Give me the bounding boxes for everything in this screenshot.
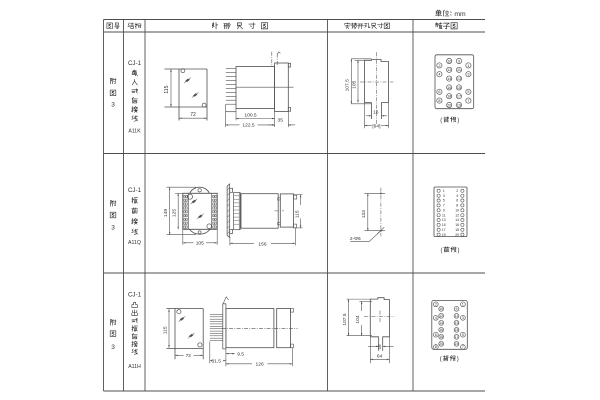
svg-text:13: 13	[455, 321, 459, 325]
svg-text:6: 6	[438, 90, 440, 94]
svg-text:72: 72	[186, 353, 192, 359]
svg-text:2: 2	[435, 303, 437, 307]
svg-text:64: 64	[377, 353, 383, 359]
svg-text:12: 12	[439, 314, 443, 318]
svg-text:[64]: [64]	[372, 124, 381, 130]
svg-text:8: 8	[435, 345, 437, 349]
svg-text:3: 3	[462, 316, 464, 320]
svg-text:10: 10	[439, 307, 443, 311]
svg-text:126: 126	[256, 362, 264, 368]
svg-text:16: 16	[447, 86, 451, 90]
svg-text:15: 15	[457, 86, 461, 90]
svg-text:107.5: 107.5	[344, 79, 350, 92]
svg-text:3: 3	[467, 73, 469, 77]
svg-text:8: 8	[456, 204, 458, 208]
svg-text:35: 35	[277, 117, 283, 123]
svg-text:10: 10	[455, 209, 459, 213]
svg-text:(: (	[441, 248, 443, 254]
svg-text:6: 6	[435, 333, 437, 337]
svg-text:7: 7	[443, 204, 445, 208]
svg-text:1: 1	[462, 303, 464, 307]
svg-text:(: (	[440, 357, 442, 363]
svg-text:4: 4	[435, 316, 437, 320]
svg-text:18: 18	[447, 95, 451, 99]
svg-text:115: 115	[294, 210, 300, 218]
svg-text:20: 20	[455, 233, 459, 237]
svg-text:31.5: 31.5	[211, 359, 221, 365]
svg-text:156: 156	[258, 241, 266, 247]
svg-text:7: 7	[462, 345, 464, 349]
svg-text:2-Φ6: 2-Φ6	[350, 236, 361, 242]
svg-text:1: 1	[443, 189, 445, 193]
svg-text:72: 72	[190, 112, 196, 118]
svg-text:): )	[457, 118, 459, 124]
svg-text:107.5: 107.5	[342, 313, 348, 326]
svg-text:19: 19	[442, 233, 446, 237]
svg-text:CJ-1: CJ-1	[128, 292, 142, 299]
svg-text:A11K: A11K	[128, 128, 141, 134]
svg-text:115: 115	[162, 326, 168, 334]
svg-text:100.5: 100.5	[244, 112, 257, 118]
svg-text:CJ-1: CJ-1	[128, 60, 142, 67]
svg-text:133: 133	[361, 210, 367, 218]
svg-text:14: 14	[455, 218, 459, 222]
svg-text:7: 7	[467, 99, 469, 103]
svg-text:16: 16	[373, 109, 379, 115]
svg-text:13: 13	[442, 218, 446, 222]
svg-text:105: 105	[352, 80, 358, 88]
svg-text:104: 104	[355, 315, 361, 323]
svg-text:4: 4	[456, 194, 458, 198]
svg-text:A11Q: A11Q	[128, 240, 141, 246]
svg-text:4: 4	[438, 73, 440, 77]
svg-text:20: 20	[439, 342, 443, 346]
svg-text:mm: mm	[454, 11, 466, 18]
svg-text:115: 115	[164, 85, 170, 93]
svg-text:13: 13	[457, 77, 461, 81]
svg-text:16: 16	[439, 328, 443, 332]
svg-text:19: 19	[457, 103, 461, 107]
svg-text:18: 18	[455, 228, 459, 232]
svg-text:12: 12	[447, 68, 451, 72]
svg-text:5: 5	[443, 199, 445, 203]
svg-text:5: 5	[462, 333, 464, 337]
svg-text:19: 19	[455, 342, 459, 346]
svg-text:15: 15	[455, 328, 459, 332]
svg-text:10: 10	[447, 59, 451, 63]
svg-text:): )	[457, 357, 459, 363]
svg-text:8: 8	[438, 99, 440, 103]
svg-text:9: 9	[443, 209, 445, 213]
svg-text:3: 3	[111, 102, 115, 109]
svg-text:A11H: A11H	[128, 364, 141, 370]
svg-text:3: 3	[111, 224, 115, 231]
svg-text:1: 1	[467, 64, 469, 68]
svg-text:125: 125	[172, 209, 178, 217]
svg-text:11: 11	[455, 314, 459, 318]
svg-text:149: 149	[163, 209, 169, 217]
svg-text:16: 16	[455, 223, 459, 227]
svg-text:(: (	[440, 118, 442, 124]
svg-text:20: 20	[447, 103, 451, 107]
svg-text:17: 17	[457, 95, 461, 99]
svg-text:3: 3	[111, 344, 115, 351]
svg-text:105: 105	[196, 241, 204, 247]
svg-text:17: 17	[442, 228, 446, 232]
svg-text:11: 11	[442, 213, 446, 217]
svg-text:3: 3	[443, 194, 445, 198]
svg-text:14: 14	[439, 321, 443, 325]
svg-text:5: 5	[467, 90, 469, 94]
svg-text:2: 2	[438, 64, 440, 68]
svg-text:17: 17	[455, 335, 459, 339]
svg-text:9.5: 9.5	[237, 351, 244, 357]
svg-text:11: 11	[457, 68, 461, 72]
svg-text:12: 12	[455, 213, 459, 217]
svg-text:122.5: 122.5	[242, 123, 255, 129]
svg-text:18: 18	[439, 335, 443, 339]
svg-text:2: 2	[456, 189, 458, 193]
svg-text:6: 6	[456, 199, 458, 203]
svg-text:9: 9	[456, 307, 458, 311]
svg-text:9: 9	[458, 59, 460, 63]
svg-text:): )	[458, 248, 460, 254]
svg-text:CJ-1: CJ-1	[128, 187, 142, 194]
svg-text:15: 15	[442, 223, 446, 227]
svg-text:14: 14	[447, 77, 451, 81]
